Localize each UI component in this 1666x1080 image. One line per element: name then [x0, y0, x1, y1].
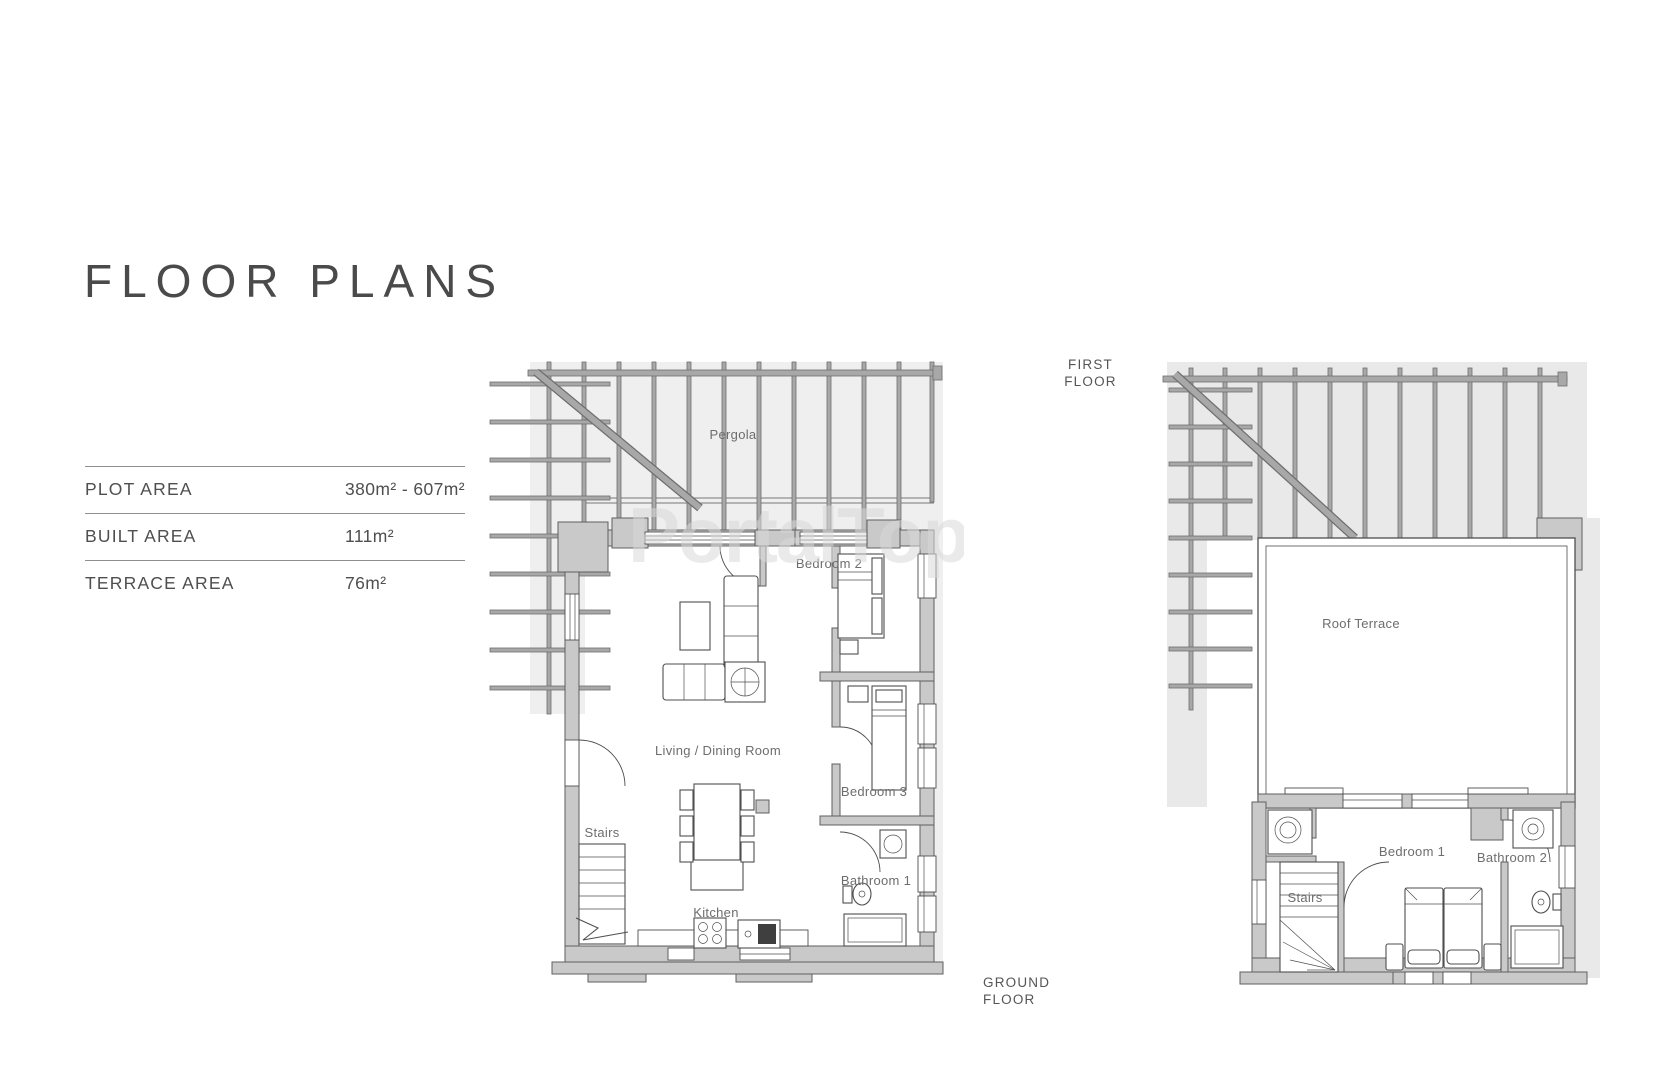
bedroom3-bed — [848, 686, 906, 790]
kitchen-fixtures — [638, 918, 808, 948]
living-dining-label: Living / Dining Room — [655, 743, 781, 758]
plot-area-label: PLOT AREA — [85, 479, 345, 500]
page-title: FLOOR PLANS — [84, 254, 505, 308]
stairs-first-label: Stairs — [1287, 890, 1322, 905]
table-row: PLOT AREA 380m² - 607m² — [85, 466, 465, 513]
ground-floor-plan: Pergola Bedroom 2 Living / Dining Room B… — [488, 332, 948, 992]
bedroom2-label: Bedroom 2 — [796, 556, 862, 571]
area-table: PLOT AREA 380m² - 607m² BUILT AREA 111m²… — [85, 466, 465, 607]
bedroom3-label: Bedroom 3 — [841, 784, 907, 799]
ground-caption-line2: FLOOR — [983, 991, 1050, 1008]
dining-set — [680, 784, 754, 890]
built-area-label: BUILT AREA — [85, 526, 345, 547]
stairs-ground-label: Stairs — [584, 825, 619, 840]
first-floor-plan: Roof Terrace Bedroom 1 Bathroom 2 Stairs — [1105, 332, 1605, 1008]
bathroom2-fixtures — [1511, 810, 1563, 968]
bathroom2-label: Bathroom 2 — [1477, 850, 1547, 865]
built-area-value: 111m² — [345, 526, 394, 547]
first-caption-line1: FIRST — [1038, 356, 1143, 373]
bedroom1-label: Bedroom 1 — [1379, 844, 1445, 859]
roof-terrace-label: Roof Terrace — [1322, 616, 1400, 631]
terrace-area-label: TERRACE AREA — [85, 573, 345, 594]
living-room-furniture — [663, 576, 765, 702]
table-row: BUILT AREA 111m² — [85, 513, 465, 560]
pergola-label: Pergola — [710, 427, 757, 442]
stairs-ground — [576, 844, 628, 944]
terrace-area-value: 76m² — [345, 573, 386, 594]
kitchen-label: Kitchen — [693, 905, 738, 920]
right-margin-backdrop — [1575, 518, 1600, 978]
ground-floor-caption: GROUND FLOOR — [983, 974, 1050, 1008]
ground-caption-line1: GROUND — [983, 974, 1050, 991]
floor-plans-page: { "page": { "title": "FLOOR PLANS" }, "a… — [0, 0, 1666, 1080]
table-row: TERRACE AREA 76m² — [85, 560, 465, 607]
stairs-first — [1280, 862, 1338, 972]
first-floor-caption: FIRST FLOOR — [1038, 356, 1143, 390]
plot-area-value: 380m² - 607m² — [345, 479, 465, 500]
bathroom1-fixtures — [843, 830, 906, 946]
roof-terrace — [1258, 518, 1582, 808]
bedroom1-bed — [1386, 888, 1501, 970]
vanity-basin — [1268, 810, 1312, 854]
first-caption-line2: FLOOR — [1038, 373, 1143, 390]
bathroom1-label: Bathroom 1 — [841, 873, 911, 888]
